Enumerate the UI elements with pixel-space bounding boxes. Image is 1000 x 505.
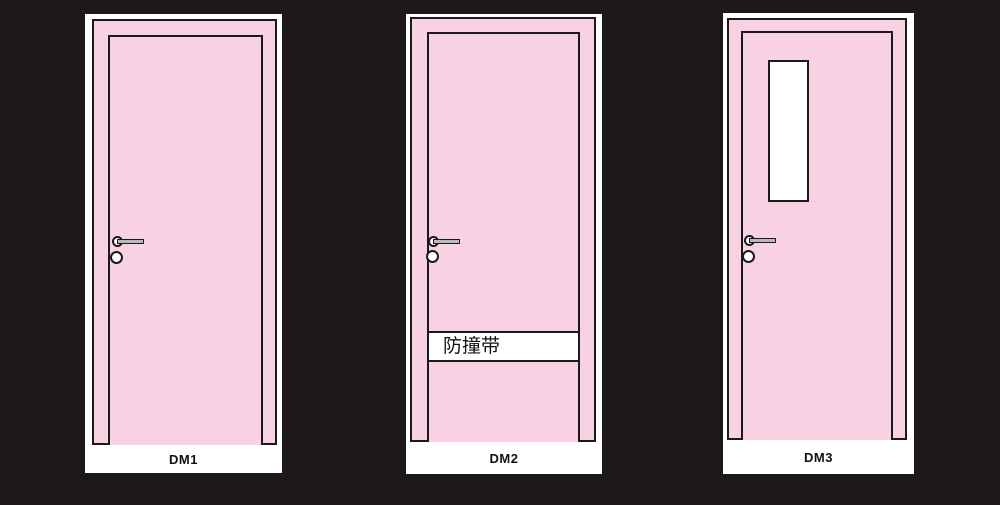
lock-knob-icon <box>742 250 755 263</box>
door-unit-dm1: DM1 <box>85 14 282 473</box>
handle-lever-icon <box>433 239 460 244</box>
door-label: DM3 <box>723 440 914 474</box>
door-label: DM1 <box>85 445 282 473</box>
door-label: DM2 <box>406 442 602 474</box>
door-unit-dm3: DM3 <box>723 13 914 474</box>
vision-window <box>768 60 809 202</box>
bump-protection-band-label: 防撞带 <box>429 337 500 356</box>
door-elevation-drawing: DM1 防撞带 DM2 DM3 <box>0 0 1000 505</box>
handle-lever-icon <box>749 238 776 243</box>
lock-knob-icon <box>110 251 123 264</box>
bump-protection-band: 防撞带 <box>429 331 578 362</box>
door-leaf <box>741 31 893 440</box>
handle-lever-icon <box>117 239 144 244</box>
door-unit-dm2: 防撞带 DM2 <box>406 14 602 474</box>
door-leaf <box>427 32 580 442</box>
lock-knob-icon <box>426 250 439 263</box>
